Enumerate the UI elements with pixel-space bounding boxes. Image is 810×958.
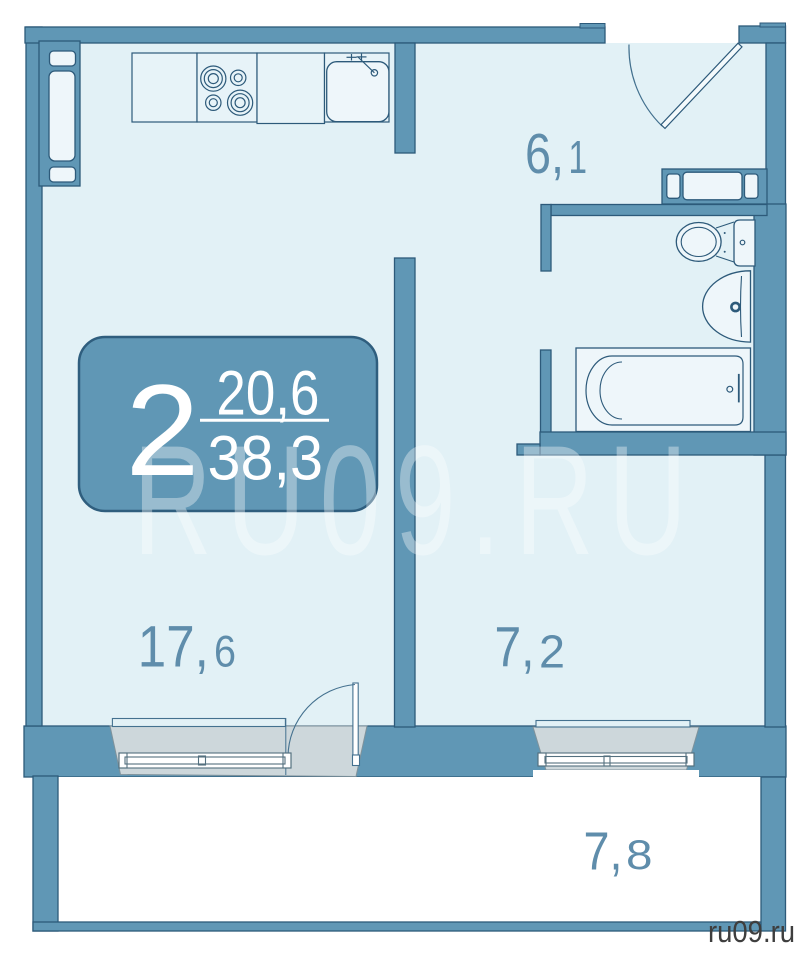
svg-text:6: 6 — [214, 628, 236, 677]
svg-text:6,: 6, — [525, 122, 564, 186]
svg-text:1: 1 — [569, 131, 588, 183]
svg-text:7,: 7, — [495, 616, 535, 680]
svg-text:7,: 7, — [584, 822, 623, 882]
svg-text:ru09.ru: ru09.ru — [708, 914, 795, 949]
svg-text:8: 8 — [626, 831, 653, 878]
svg-text:2: 2 — [539, 626, 565, 678]
svg-text:17,: 17, — [138, 615, 209, 680]
svg-text:RU09.RU: RU09.RU — [133, 413, 702, 588]
